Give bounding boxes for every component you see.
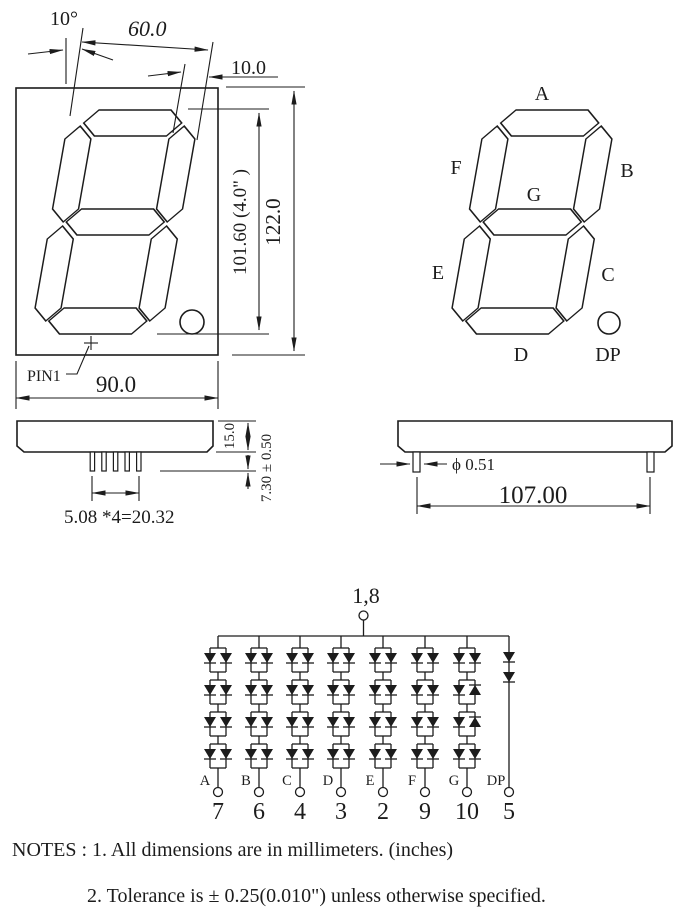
dim-pin-pitch: 5.08 *4=20.32 [64, 476, 174, 528]
pin-row-span-label: 107.00 [499, 482, 568, 509]
segment-label-b: B [620, 160, 633, 182]
diode-down [469, 749, 481, 759]
segment-label-c: C [601, 264, 614, 286]
diode-down [427, 653, 439, 663]
pin-terminal [463, 788, 472, 797]
datasheet-drawing-page: PIN1 90.0 10° 60.0 10.0 [0, 0, 685, 919]
diode-down [343, 749, 355, 759]
package-height-label: 122.0 [261, 198, 285, 245]
schematic-column-b: B6 [241, 636, 273, 825]
diode-down [261, 717, 273, 727]
diode-down [411, 749, 423, 759]
segment-label-f: F [450, 157, 461, 179]
schematic-pin-number: 6 [253, 799, 265, 825]
schematic-pin-number: 10 [455, 799, 479, 825]
diode-down [220, 653, 232, 663]
body-outline [398, 421, 672, 452]
pin-terminal [214, 788, 223, 797]
diode-down [385, 717, 397, 727]
schematic-pin-number: 3 [335, 799, 347, 825]
pin-terminal [505, 788, 514, 797]
diode-down [453, 717, 465, 727]
pin1-marker: PIN1 [27, 336, 98, 385]
segment-label-g: G [527, 184, 541, 206]
schematic-column-g: G10 [449, 636, 481, 825]
diode-down [245, 749, 257, 759]
seven-segment-digit [448, 110, 617, 334]
schematic-pin-number: 9 [419, 799, 431, 825]
pin-terminal [421, 788, 430, 797]
schematic-column-e: E2 [366, 636, 397, 825]
schematic-segment-label: D [323, 773, 333, 789]
diode-down [503, 672, 515, 682]
segment-diagram: A F B G E C D DP [432, 83, 634, 366]
pin-diameter-label: ϕ 0.51 [452, 455, 495, 474]
diode-down [286, 653, 298, 663]
diode-down [245, 717, 257, 727]
diode-down [327, 685, 339, 695]
diode-down [385, 685, 397, 695]
diode-down [385, 653, 397, 663]
dim-body-thickness: 15.0 [216, 421, 256, 452]
schematic-segment-label: G [449, 773, 460, 789]
diode-down [453, 749, 465, 759]
pin-terminal [255, 788, 264, 797]
schematic-pin-number: 5 [503, 799, 515, 825]
note-line-1: NOTES : 1. All dimensions are in millime… [12, 839, 453, 861]
diode-down [369, 749, 381, 759]
diode-down [220, 749, 232, 759]
diode-down [503, 652, 515, 662]
schematic-pin-number: 4 [294, 799, 306, 825]
diode-down [204, 685, 216, 695]
diode-down [245, 685, 257, 695]
diode-down [204, 749, 216, 759]
schematic-column-d: D3 [323, 636, 355, 825]
diode-down [453, 653, 465, 663]
diode-down [369, 717, 381, 727]
schematic-segment-label: DP [487, 773, 506, 789]
schematic-segment-label: F [408, 773, 416, 789]
schematic-pin-number: 7 [212, 799, 224, 825]
pin-pitch-label: 5.08 *4=20.32 [64, 507, 174, 528]
diode-down [343, 685, 355, 695]
pin-left [413, 452, 420, 472]
segment-label-dp: DP [595, 344, 621, 366]
common-pins-label: 1,8 [352, 583, 380, 608]
schematic-column-c: C4 [282, 636, 314, 825]
seven-segment-digit [31, 110, 200, 334]
diode-down [411, 717, 423, 727]
diode-down [261, 653, 273, 663]
pin-terminal [337, 788, 346, 797]
diode-down [286, 717, 298, 727]
diode-down [220, 717, 232, 727]
segment-label-e: E [432, 262, 444, 284]
dim-pin-length: 7.30 ± 0.50 [160, 434, 275, 502]
diode-down [220, 685, 232, 695]
notes: NOTES : 1. All dimensions are in millime… [12, 839, 546, 907]
diode-down [302, 685, 314, 695]
technical-drawing: PIN1 90.0 10° 60.0 10.0 [0, 0, 685, 919]
diode-down [327, 717, 339, 727]
diode-down [385, 749, 397, 759]
diode-down [261, 749, 273, 759]
bottom-view: 15.0 7.30 ± 0.50 5.08 *4=20.32 [17, 421, 275, 528]
diode-down [427, 749, 439, 759]
schematic-segment-label: A [200, 773, 211, 789]
pin1-label: PIN1 [27, 368, 61, 385]
diode-down [343, 717, 355, 727]
diode-down [469, 653, 481, 663]
package-width-label: 90.0 [96, 372, 136, 397]
note-line-2: 2. Tolerance is ± 0.25(0.010") unless ot… [87, 885, 546, 907]
led-schematic: 1,8 A7B6C4D3E2F9G10DP5 [200, 583, 515, 825]
diode-down [204, 717, 216, 727]
diode-down [369, 653, 381, 663]
schematic-segment-label: C [282, 773, 292, 789]
slant-angle-label: 10° [50, 8, 78, 30]
pin-length-label: 7.30 ± 0.50 [259, 434, 275, 502]
pins [90, 452, 141, 471]
diode-down [453, 685, 465, 695]
diode-down [204, 653, 216, 663]
diode-down [245, 653, 257, 663]
body-outline [17, 421, 213, 452]
pin-terminal [296, 788, 305, 797]
schematic-column-f: F9 [408, 636, 439, 825]
segment-label-a: A [535, 83, 550, 105]
pin-right [647, 452, 654, 472]
top-offset-label: 10.0 [231, 57, 266, 79]
diode-up [469, 685, 481, 695]
diode-down [411, 653, 423, 663]
decimal-point-outline [180, 310, 204, 334]
schematic-column-dp: DP5 [487, 636, 515, 825]
diode-down [302, 653, 314, 663]
dim-pin-row-span: 107.00 [417, 477, 650, 514]
diode-up [469, 717, 481, 727]
diode-down [302, 749, 314, 759]
schematic-segment-label: E [366, 773, 375, 789]
digit-width-label: 60.0 [128, 16, 167, 41]
diode-down [286, 685, 298, 695]
diode-down [327, 749, 339, 759]
led-schematic-columns: A7B6C4D3E2F9G10DP5 [200, 636, 515, 825]
diode-down [261, 685, 273, 695]
common-terminal [359, 611, 368, 620]
body-thickness-label: 15.0 [222, 423, 238, 449]
diode-down [327, 653, 339, 663]
diode-down [302, 717, 314, 727]
dim-pin-diameter: ϕ 0.51 [380, 455, 495, 474]
diode-down [411, 685, 423, 695]
front-view: PIN1 90.0 10° 60.0 10.0 [16, 8, 305, 409]
diode-down [369, 685, 381, 695]
diode-down [427, 685, 439, 695]
pin-terminal [379, 788, 388, 797]
side-view: ϕ 0.51 107.00 [380, 421, 672, 514]
diode-down [427, 717, 439, 727]
decimal-point-outline [598, 312, 620, 334]
schematic-column-a: A7 [200, 636, 232, 825]
digit-height-label: 101.60 (4.0" ) [230, 169, 251, 275]
diode-down [286, 749, 298, 759]
schematic-segment-label: B [241, 773, 251, 789]
segment-label-d: D [514, 344, 528, 366]
schematic-pin-number: 2 [377, 799, 389, 825]
diode-down [343, 653, 355, 663]
